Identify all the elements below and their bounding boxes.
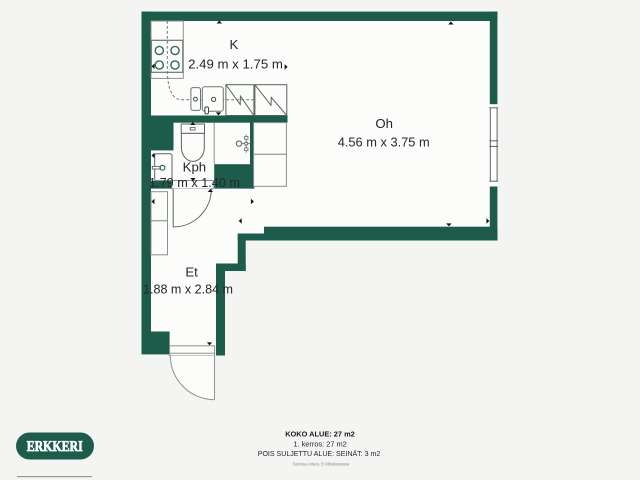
svg-text:1.88 m x 2.84 m: 1.88 m x 2.84 m bbox=[143, 282, 233, 297]
svg-text:Kph: Kph bbox=[183, 159, 206, 174]
svg-text:4.56 m x 3.75 m: 4.56 m x 3.75 m bbox=[338, 134, 430, 149]
svg-text:1.79 m x 1.40 m: 1.79 m x 1.40 m bbox=[149, 175, 240, 190]
svg-text:2.49 m x 1.75 m: 2.49 m x 1.75 m bbox=[188, 57, 283, 72]
svg-text:Suuntaa Antava, Ei Mittakaavas: Suuntaa Antava, Ei Mittakaavassa bbox=[293, 462, 350, 467]
svg-text:Et: Et bbox=[185, 264, 198, 279]
svg-text:POIS SULJETTU ALUE: SEINÄT: 3: POIS SULJETTU ALUE: SEINÄT: 3 m2 bbox=[258, 449, 381, 458]
svg-text:1. kerros: 27 m2: 1. kerros: 27 m2 bbox=[293, 439, 346, 448]
svg-text:ERKKERI: ERKKERI bbox=[27, 439, 83, 455]
svg-text:K: K bbox=[230, 37, 239, 52]
svg-text:Oh: Oh bbox=[375, 116, 393, 131]
svg-text:KOKO ALUE: 27 m2: KOKO ALUE: 27 m2 bbox=[285, 430, 355, 439]
